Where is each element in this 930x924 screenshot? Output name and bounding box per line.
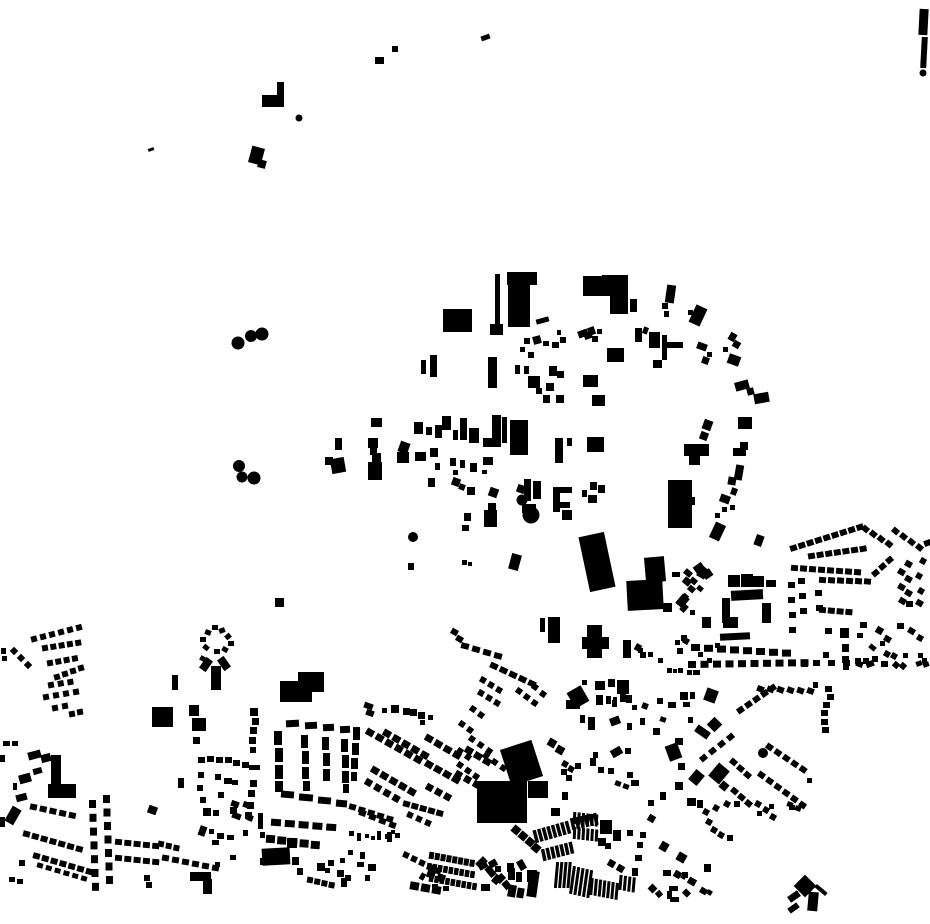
building-footprint-map	[0, 0, 930, 924]
map-canvas	[0, 0, 930, 924]
